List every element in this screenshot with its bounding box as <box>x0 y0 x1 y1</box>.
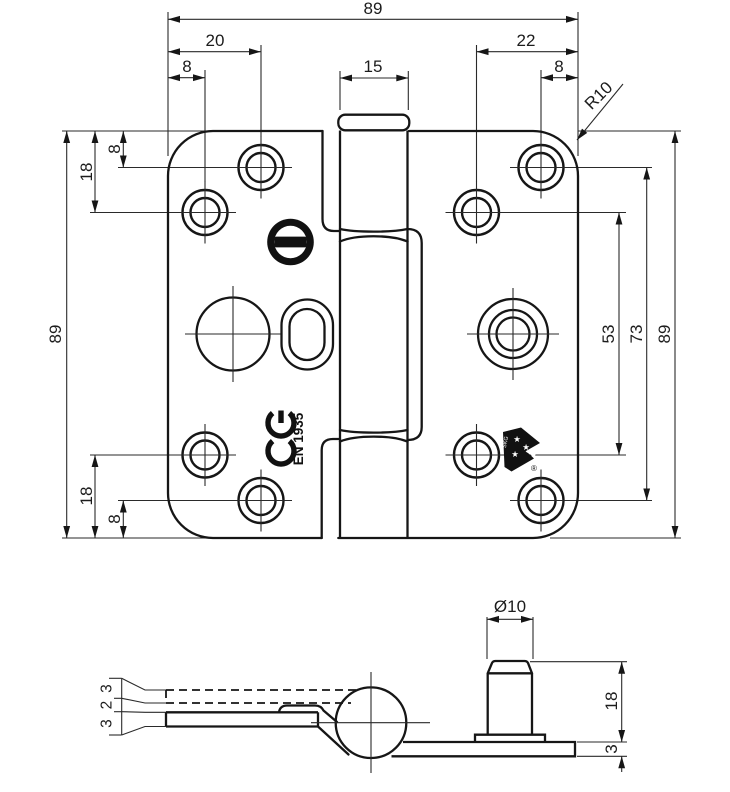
knuckle-joint-upper <box>340 229 408 232</box>
screw-hole <box>174 182 236 244</box>
leaf-thickness-dimensions: 3 2 3 <box>99 678 167 735</box>
dim-height-total-right: 89 <box>655 325 674 344</box>
oval-slot <box>282 300 334 370</box>
knuckle-joint-lower <box>340 430 408 433</box>
security-stud-slot-marker <box>267 219 314 266</box>
top-view: 89 20 8 15 22 8 R10 8 18 89 18 8 53 73 8… <box>46 0 681 538</box>
dim-row-18-bottom: 18 <box>77 487 96 506</box>
star-icon: ★ <box>513 434 521 444</box>
adjustment-hole <box>185 286 281 382</box>
dim-corner-radius: R10 <box>581 78 616 113</box>
star-icon: ★ <box>511 449 519 459</box>
dim-stud-diameter: Ø10 <box>494 597 526 616</box>
left-leaf-seam-top <box>323 131 341 231</box>
stud-diameter-dimension: Ø10 <box>487 597 533 659</box>
dim-hole-offset-22: 22 <box>517 31 536 50</box>
dim-hole-offset-8-right: 8 <box>554 57 563 76</box>
pin-cap <box>338 115 409 131</box>
dim-hole-offset-20: 20 <box>206 31 225 50</box>
extension-lines <box>62 12 681 538</box>
screw-hole <box>510 470 572 532</box>
screw-hole <box>446 182 508 244</box>
en-1935-label: EN 1935 <box>291 412 306 465</box>
screw-hole <box>446 424 508 486</box>
dim-row-8-top: 8 <box>105 144 124 153</box>
hinge-knuckle-top-view <box>322 115 422 538</box>
registered-symbol: ® <box>531 464 537 473</box>
dim-width-total: 89 <box>364 0 383 18</box>
stud-leaf-section <box>392 661 576 756</box>
leaf-section <box>166 706 349 755</box>
skg-certification-logo: ★ ★ ★ SKG ® <box>502 428 540 474</box>
dim-lower-leaf-thickness: 3 <box>99 719 116 728</box>
side-view: 3 2 3 Ø10 18 3 <box>99 597 628 773</box>
knuckle-curl-lip <box>279 706 337 723</box>
screw-hole <box>230 137 292 199</box>
dim-knuckle-width: 15 <box>364 57 383 76</box>
security-stud-cap <box>488 661 532 673</box>
dimension-labels: 89 20 8 15 22 8 R10 8 18 89 18 8 53 73 8… <box>46 0 674 524</box>
dim-plate-thickness: 3 <box>602 744 621 753</box>
screw-hole <box>174 424 236 486</box>
screw-hole <box>230 470 292 532</box>
dim-height-total-left: 89 <box>46 325 65 344</box>
dim-leaf-gap: 2 <box>99 701 116 710</box>
ce-mark-text: CE <box>274 433 288 444</box>
star-icon: ★ <box>522 442 530 452</box>
knuckle-section <box>311 672 430 773</box>
dim-hole-offset-8-left: 8 <box>182 57 191 76</box>
dim-row-8-bottom: 8 <box>105 514 124 523</box>
drawing-canvas: 89 20 8 15 22 8 R10 8 18 89 18 8 53 73 8… <box>0 0 730 792</box>
left-leaf-seam-bottom <box>322 439 340 538</box>
hinge-technical-drawing: 89 20 8 15 22 8 R10 8 18 89 18 8 53 73 8… <box>0 0 730 792</box>
dim-span-73: 73 <box>627 325 646 344</box>
dim-upper-leaf-thickness: 3 <box>99 684 116 693</box>
screw-hole <box>510 137 572 199</box>
dim-stud-height: 18 <box>602 692 621 711</box>
dim-span-53: 53 <box>599 325 618 344</box>
right-leaf-seam <box>408 229 422 440</box>
hidden-leaf-dashed <box>166 690 357 703</box>
countersunk-hole <box>467 288 559 380</box>
dim-row-18-top: 18 <box>77 163 96 182</box>
